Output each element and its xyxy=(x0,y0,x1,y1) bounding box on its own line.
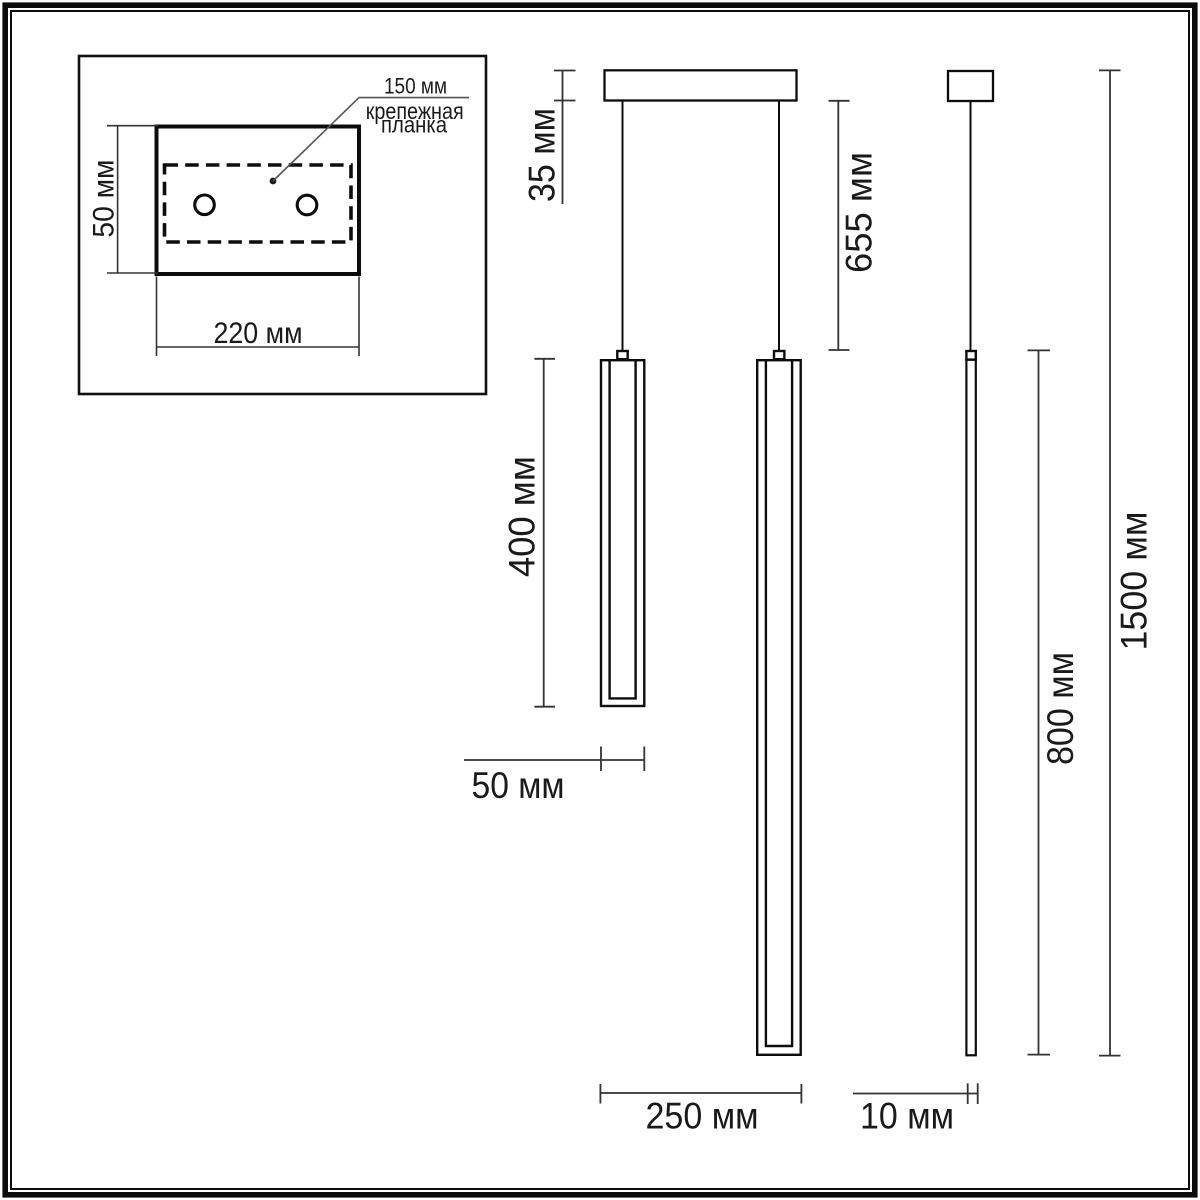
svg-text:10 мм: 10 мм xyxy=(860,1096,954,1137)
svg-text:планка: планка xyxy=(381,112,448,138)
svg-text:800 мм: 800 мм xyxy=(1040,652,1081,765)
svg-text:400 мм: 400 мм xyxy=(502,456,543,577)
svg-text:50 мм: 50 мм xyxy=(88,160,121,238)
svg-text:220 мм: 220 мм xyxy=(214,317,303,350)
svg-text:50 мм: 50 мм xyxy=(472,765,565,806)
svg-text:655 мм: 655 мм xyxy=(839,152,880,273)
svg-text:250 мм: 250 мм xyxy=(646,1096,759,1137)
svg-text:1500 мм: 1500 мм xyxy=(1114,512,1155,651)
svg-text:35 мм: 35 мм xyxy=(522,108,563,202)
svg-text:150 мм: 150 мм xyxy=(384,74,447,99)
